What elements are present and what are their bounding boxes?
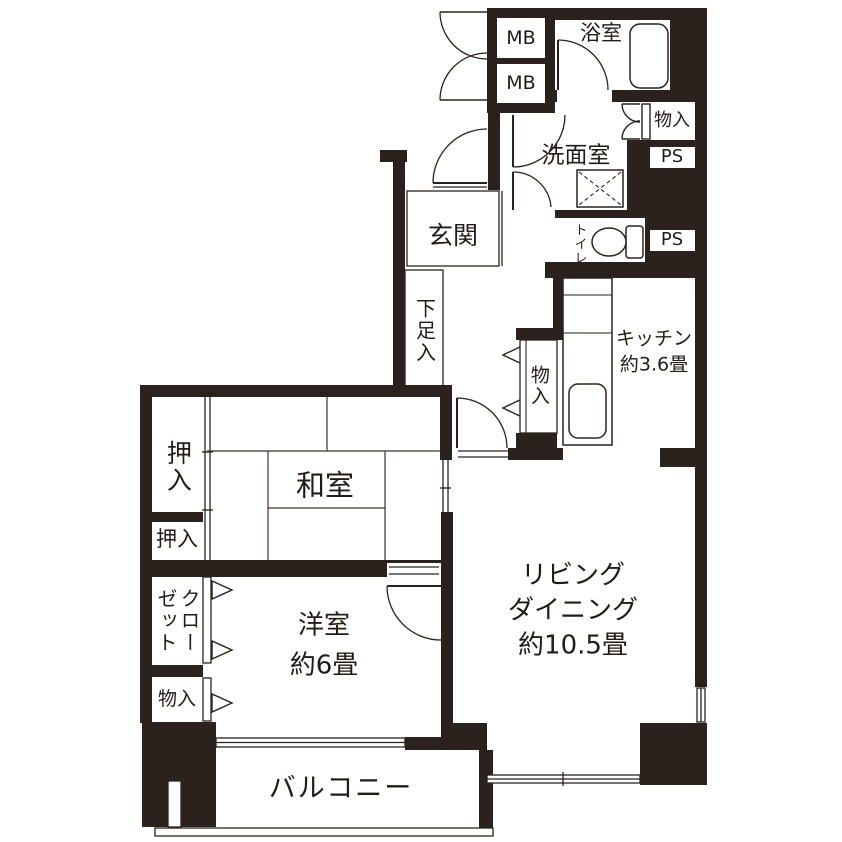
room-label-washroom: 洗面室 [542, 140, 611, 171]
label-ps1: PS [661, 145, 683, 169]
kitchen-counter-icon [563, 278, 612, 445]
kitchen-sink-icon [569, 384, 606, 438]
label-ps2: PS [661, 228, 683, 252]
bath-door-icon [558, 40, 608, 90]
closet-fold-icon [212, 641, 232, 659]
balcony-partition [168, 781, 181, 827]
room-label-genkan: 玄関 [428, 219, 478, 253]
label-closet: クロー ゼット [154, 588, 200, 654]
balcony-railing [155, 828, 493, 836]
label-storage-west: 物入 [158, 687, 196, 713]
room-label-youshitsu: 洋室 約6畳 [290, 606, 359, 687]
wall-openings [168, 18, 695, 827]
entry-door-icon [433, 129, 487, 183]
label-storage-top: 物入 [654, 109, 690, 133]
youshitsu-door-icon [387, 586, 441, 640]
floor-plan-drawing [0, 0, 842, 842]
label-oshiire-lower: 押入 [156, 525, 198, 553]
room-label-bathroom: 浴室 [580, 19, 622, 47]
label-oshiire-upper: 押入 [163, 440, 192, 494]
room-label-toilet: トイレ [571, 223, 586, 265]
room-label-balcony: バルコニー [269, 771, 413, 807]
porch-double-door-icon [440, 12, 487, 100]
room-label-living-dining: リビング ダイニング 約10.5畳 [508, 558, 638, 663]
toilet-icon [592, 226, 643, 258]
youshitsu-window-icon [216, 738, 405, 747]
bathtub-icon [630, 24, 668, 88]
room-label-kitchen: キッチン 約3.6畳 [616, 326, 692, 377]
room-label-washitsu: 和室 [296, 466, 354, 505]
label-mb1: MB [506, 26, 535, 52]
storage-top-doors-icon [622, 104, 650, 139]
washing-machine-pan-icon [577, 170, 623, 207]
living-door-icon [457, 398, 507, 448]
storage-west-fold-icon [212, 694, 232, 712]
toilet-door-icon [513, 172, 551, 210]
storage-hall-fold-icon [503, 346, 522, 364]
label-storage-hall: 物入 [527, 365, 549, 407]
label-shoe-cabinet: 下足入 [413, 298, 436, 364]
living-window-icon [487, 772, 640, 786]
floor-plan: MB MB 浴室 洗面室 物入 PS PS トイレ 玄関 下足入 キッチン 約3… [0, 0, 842, 842]
living-side-window-icon [697, 688, 705, 722]
closet-fold-icon [212, 581, 232, 599]
label-mb2: MB [506, 71, 535, 97]
storage-hall-fold-icon [503, 399, 522, 417]
windows [155, 688, 705, 836]
